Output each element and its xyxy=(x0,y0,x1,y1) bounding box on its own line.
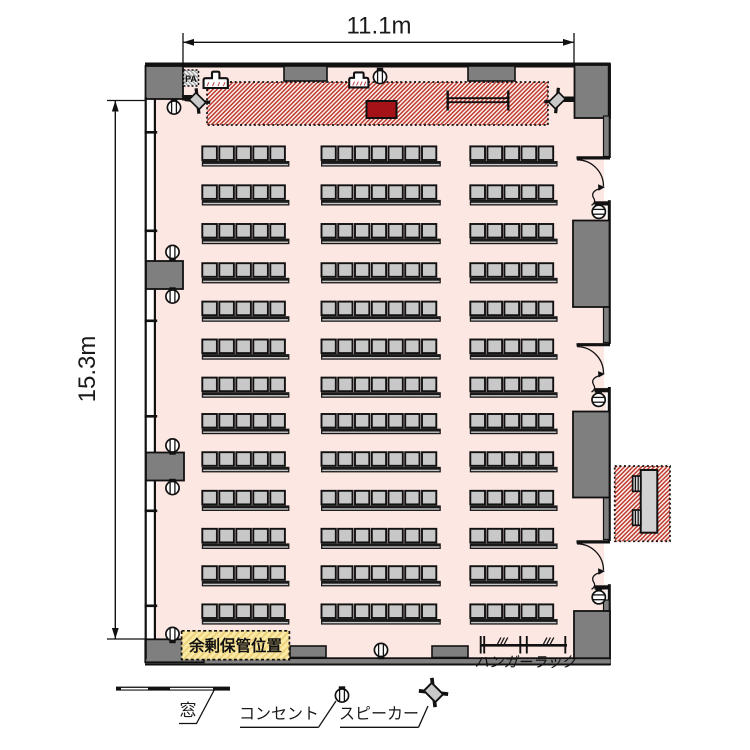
svg-text:コンセント: コンセント xyxy=(239,706,319,723)
svg-text:PA: PA xyxy=(185,74,197,84)
svg-text:余剰保管位置: 余剰保管位置 xyxy=(188,636,282,655)
svg-text:11.1m: 11.1m xyxy=(347,13,412,40)
svg-text:15.3m: 15.3m xyxy=(74,336,101,403)
svg-text:スピーカー: スピーカー xyxy=(339,706,419,723)
svg-text:ハンガーラック: ハンガーラック xyxy=(474,654,579,671)
svg-text:窓: 窓 xyxy=(180,701,197,720)
